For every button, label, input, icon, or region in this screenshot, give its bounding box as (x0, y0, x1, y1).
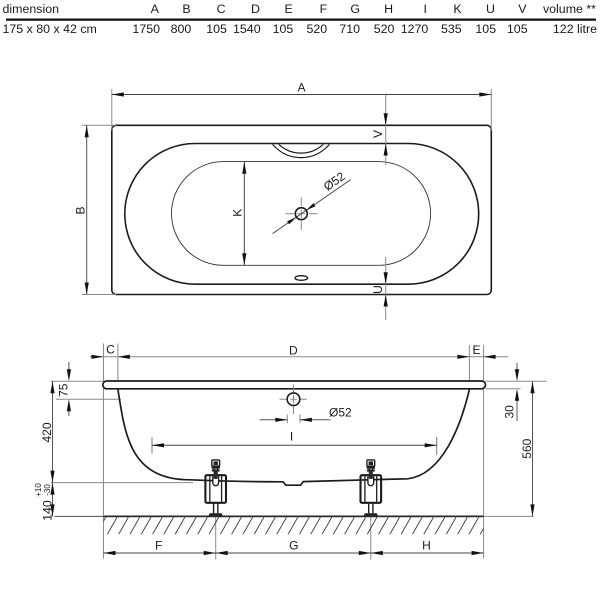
svg-text:800: 800 (171, 22, 192, 36)
svg-text:75: 75 (56, 383, 70, 397)
svg-text:V: V (371, 130, 385, 138)
svg-text:K: K (230, 209, 244, 217)
svg-text:30: 30 (502, 405, 516, 419)
svg-text:D: D (289, 344, 298, 358)
svg-text:1540: 1540 (233, 22, 261, 36)
svg-text:105: 105 (206, 22, 227, 36)
svg-text:E: E (285, 2, 293, 16)
svg-text:K: K (453, 2, 462, 16)
svg-text:535: 535 (441, 22, 462, 36)
svg-text:710: 710 (339, 22, 360, 36)
svg-text:C: C (106, 343, 115, 357)
svg-text:G: G (350, 2, 360, 16)
svg-text:560: 560 (520, 438, 534, 458)
svg-text:U: U (486, 2, 495, 16)
svg-text:175 x 80 x 42 cm: 175 x 80 x 42 cm (3, 22, 97, 36)
svg-text:105: 105 (273, 22, 294, 36)
svg-text:H: H (384, 2, 393, 16)
svg-text:B: B (182, 2, 190, 16)
svg-text:U: U (371, 285, 385, 294)
svg-text:1750: 1750 (132, 22, 160, 36)
svg-text:B: B (74, 206, 88, 214)
svg-text:105: 105 (475, 22, 496, 36)
svg-text:volume **: volume ** (543, 2, 596, 16)
svg-text:E: E (472, 343, 480, 357)
svg-text:F: F (155, 539, 162, 553)
svg-text:520: 520 (374, 22, 395, 36)
svg-text:I: I (424, 2, 427, 16)
svg-text:F: F (320, 2, 328, 16)
svg-text:G: G (289, 539, 298, 553)
svg-text:dimension: dimension (3, 2, 60, 16)
svg-text:520: 520 (307, 22, 328, 36)
svg-text:D: D (251, 2, 260, 16)
svg-text:+10: +10 (34, 483, 43, 497)
svg-text:A: A (297, 81, 305, 95)
svg-text:122 litre: 122 litre (553, 22, 597, 36)
svg-text:1270: 1270 (401, 22, 429, 36)
svg-text:Ø52: Ø52 (329, 406, 352, 420)
svg-text:140: 140 (40, 500, 54, 521)
svg-text:105: 105 (507, 22, 528, 36)
svg-text:420: 420 (40, 422, 54, 442)
svg-text:I: I (290, 430, 293, 444)
svg-text:V: V (518, 2, 527, 16)
svg-text:C: C (217, 2, 226, 16)
svg-text:A: A (151, 2, 160, 16)
svg-text:H: H (422, 539, 431, 553)
svg-text:-30: -30 (43, 484, 52, 496)
